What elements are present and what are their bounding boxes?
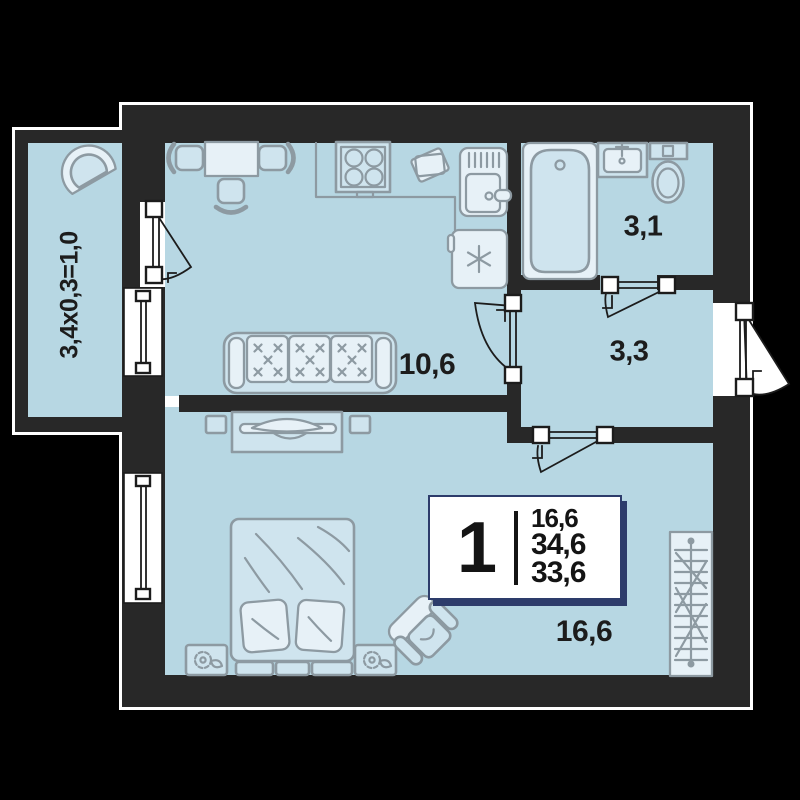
nightstand-left (186, 645, 227, 675)
sofa (224, 333, 396, 393)
bedroom-area-label: 16,6 (556, 615, 612, 649)
floorplan-drawing (0, 0, 800, 800)
floor-plan: 3,4x0,3=1,0 10,6 3,1 3,3 16,6 1 16,6 34,… (0, 0, 800, 800)
bed (231, 519, 354, 675)
bathroom-sink (598, 143, 647, 177)
fridge (448, 230, 507, 288)
bathroom-area-label: 3,1 (624, 211, 663, 244)
wardrobe (670, 532, 712, 676)
toilet (650, 143, 687, 203)
bedroom-window (124, 473, 162, 603)
kitchen-sink (460, 148, 511, 216)
balcony-area-label: 3,4x0,3=1,0 (56, 231, 85, 358)
total-area-value: 34,6 (531, 531, 585, 559)
nightstand-right (355, 645, 396, 675)
rooms-count: 1 (457, 512, 497, 584)
card-divider (514, 511, 518, 585)
stove (336, 142, 390, 197)
kitchen-window (124, 288, 162, 376)
apartment-info-card: 1 16,6 34,6 33,6 (428, 495, 622, 600)
bathtub (523, 143, 597, 279)
reduced-area-value: 33,6 (531, 559, 585, 587)
area-values: 16,6 34,6 33,6 (531, 507, 585, 587)
hallway-area-label: 3,3 (610, 336, 649, 369)
kitchen-area-label: 10,6 (399, 348, 455, 382)
